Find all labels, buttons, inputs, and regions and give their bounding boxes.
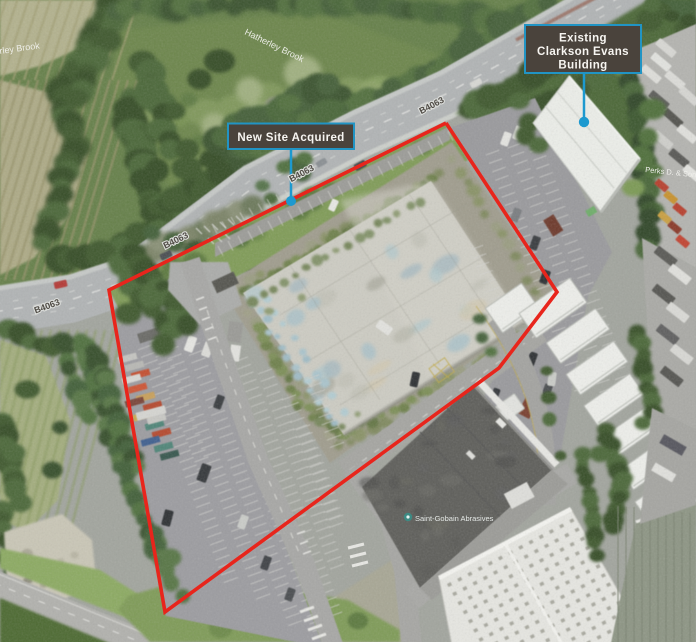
svg-text:Building: Building [558,60,607,72]
svg-text:Clarkson Evans: Clarkson Evans [537,46,629,58]
svg-text:Saint-Gobain Abrasives: Saint-Gobain Abrasives [415,514,494,523]
svg-text:Existing: Existing [559,33,607,45]
svg-text:New Site Acquired: New Site Acquired [237,132,344,144]
